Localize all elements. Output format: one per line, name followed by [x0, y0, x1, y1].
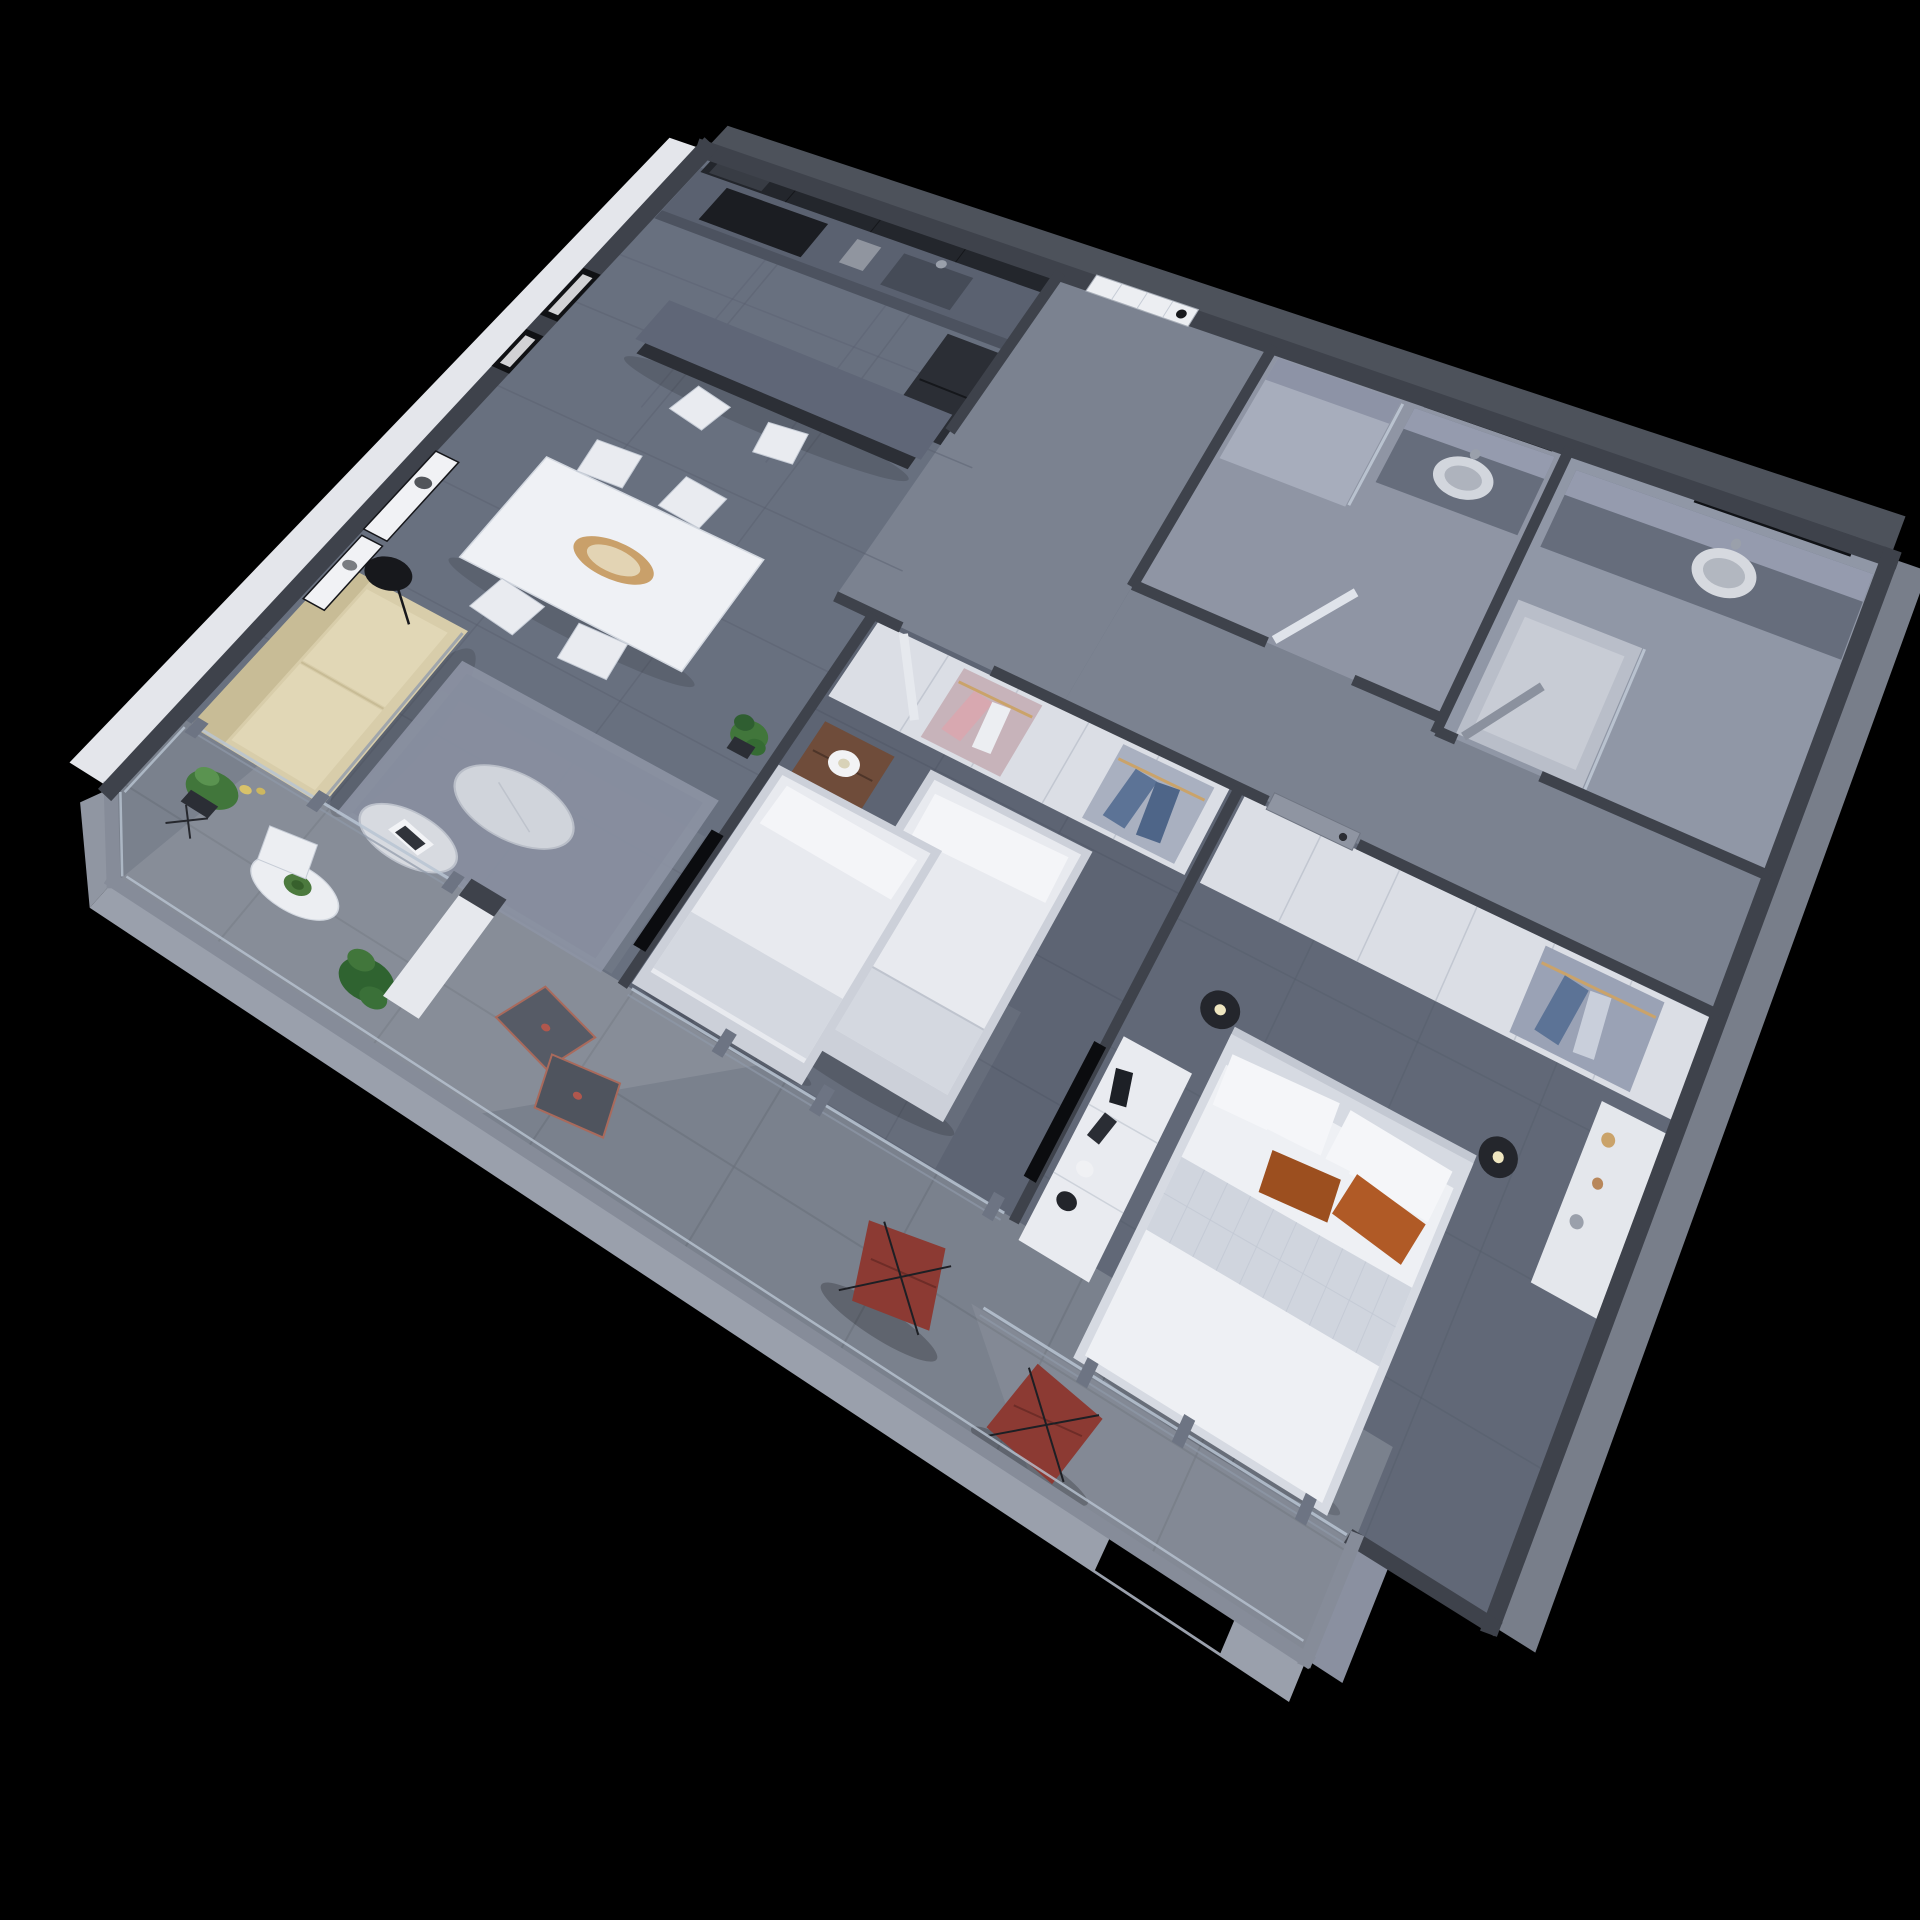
balcony-parapet-chamfer — [111, 788, 114, 881]
apartment-3d-floorplan — [0, 0, 1920, 1920]
floorplan-render-stage — [0, 0, 1920, 1920]
